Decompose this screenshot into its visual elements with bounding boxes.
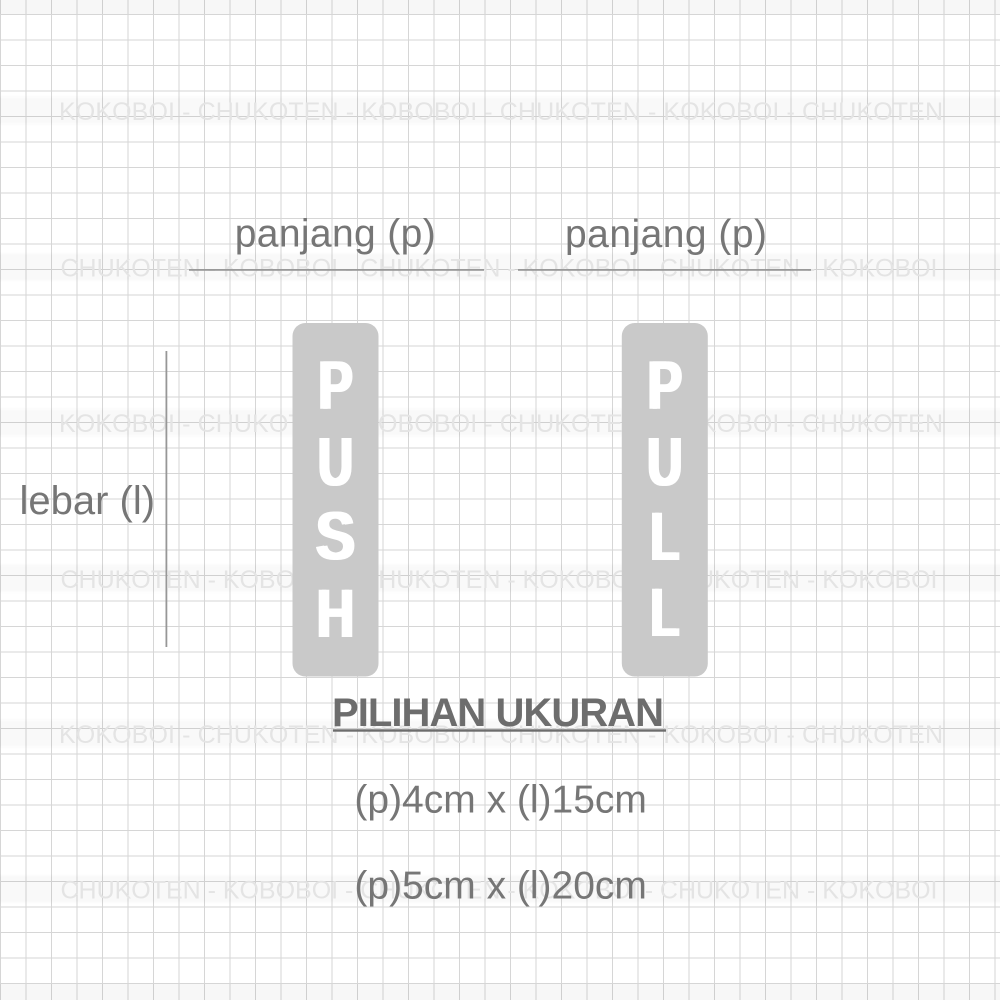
- svg-text:L: L: [652, 498, 681, 575]
- svg-text:lebar (l): lebar (l): [20, 479, 156, 523]
- svg-text:CHUKOTEN - KOBOBOI - CHUKOTEN: CHUKOTEN - KOBOBOI - CHUKOTEN - KOKOBOI …: [61, 255, 938, 283]
- svg-text:U: U: [320, 423, 355, 501]
- svg-text:P: P: [320, 346, 354, 423]
- svg-text:KOKOBOI - CHUKOTEN - KOBOBOI -: KOKOBOI - CHUKOTEN - KOBOBOI - CHUKOTEN …: [59, 98, 943, 126]
- svg-text:H: H: [318, 575, 355, 652]
- svg-text:PILIHAN UKURAN: PILIHAN UKURAN: [332, 691, 664, 735]
- svg-text:panjang (p): panjang (p): [565, 213, 767, 256]
- svg-text:P: P: [649, 346, 683, 423]
- svg-text:KOKOBOI - CHUKOTEN - KOBOBOI -: KOKOBOI - CHUKOTEN - KOBOBOI - CHUKOTEN …: [59, 410, 943, 438]
- svg-text:S: S: [317, 497, 356, 574]
- svg-text:(p)4cm x (l)15cm: (p)4cm x (l)15cm: [354, 779, 647, 822]
- svg-text:CHUKOTEN - KOBOBOI - CHUKOTEN: CHUKOTEN - KOBOBOI - CHUKOTEN - KOKOBOI …: [61, 566, 938, 594]
- svg-text:panjang (p): panjang (p): [235, 213, 436, 256]
- svg-text:U: U: [649, 423, 684, 501]
- svg-text:L: L: [652, 574, 681, 651]
- svg-text:(p)5cm x (l)20cm: (p)5cm x (l)20cm: [354, 865, 647, 908]
